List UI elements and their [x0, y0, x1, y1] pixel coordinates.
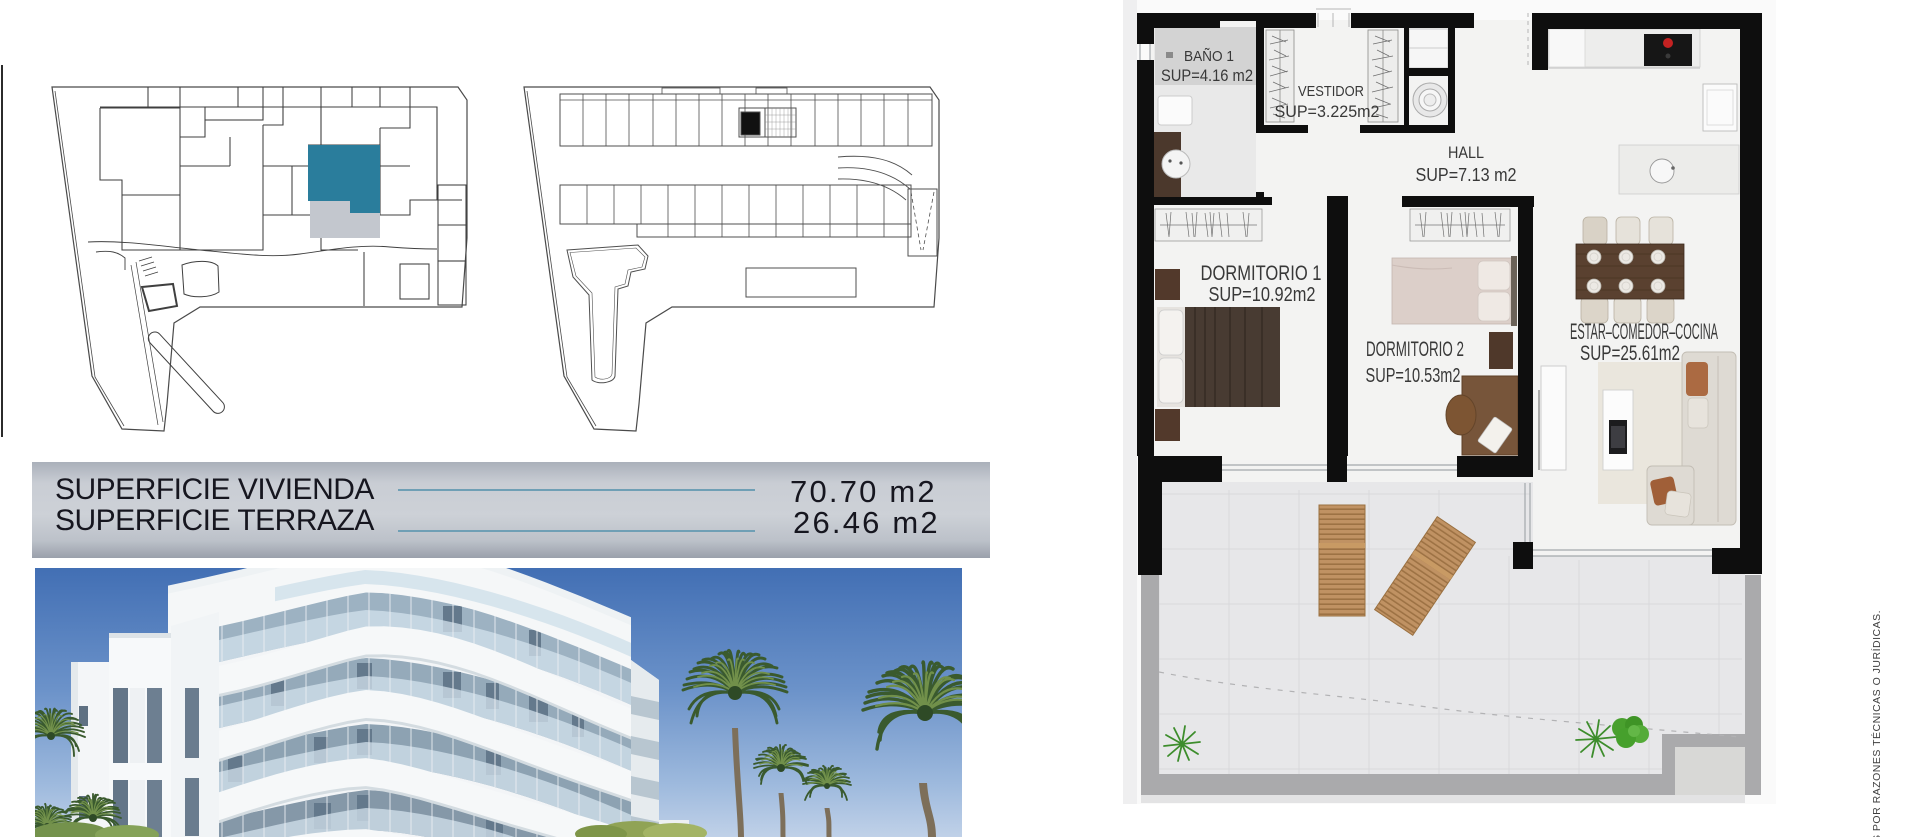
svg-text:SUP=3.225m2: SUP=3.225m2	[1275, 102, 1380, 121]
svg-text:SUP=25.61m2: SUP=25.61m2	[1580, 342, 1680, 365]
svg-text:SUP=7.13 m2: SUP=7.13 m2	[1416, 165, 1517, 185]
svg-text:VESTIDOR: VESTIDOR	[1298, 83, 1364, 100]
svg-text:SUP=4.16 m2: SUP=4.16 m2	[1161, 66, 1253, 85]
svg-text:SUP=10.53m2: SUP=10.53m2	[1366, 365, 1461, 387]
svg-text:SUP=10.92m2: SUP=10.92m2	[1209, 284, 1316, 306]
svg-text:DORMITORIO 2: DORMITORIO 2	[1366, 338, 1464, 361]
svg-text:ESTAR–COMEDOR–COCINA: ESTAR–COMEDOR–COCINA	[1570, 319, 1718, 344]
svg-text:BAÑO 1: BAÑO 1	[1184, 48, 1234, 65]
svg-text:HALL: HALL	[1448, 143, 1484, 162]
svg-text:DORMITORIO 1: DORMITORIO 1	[1201, 262, 1322, 285]
